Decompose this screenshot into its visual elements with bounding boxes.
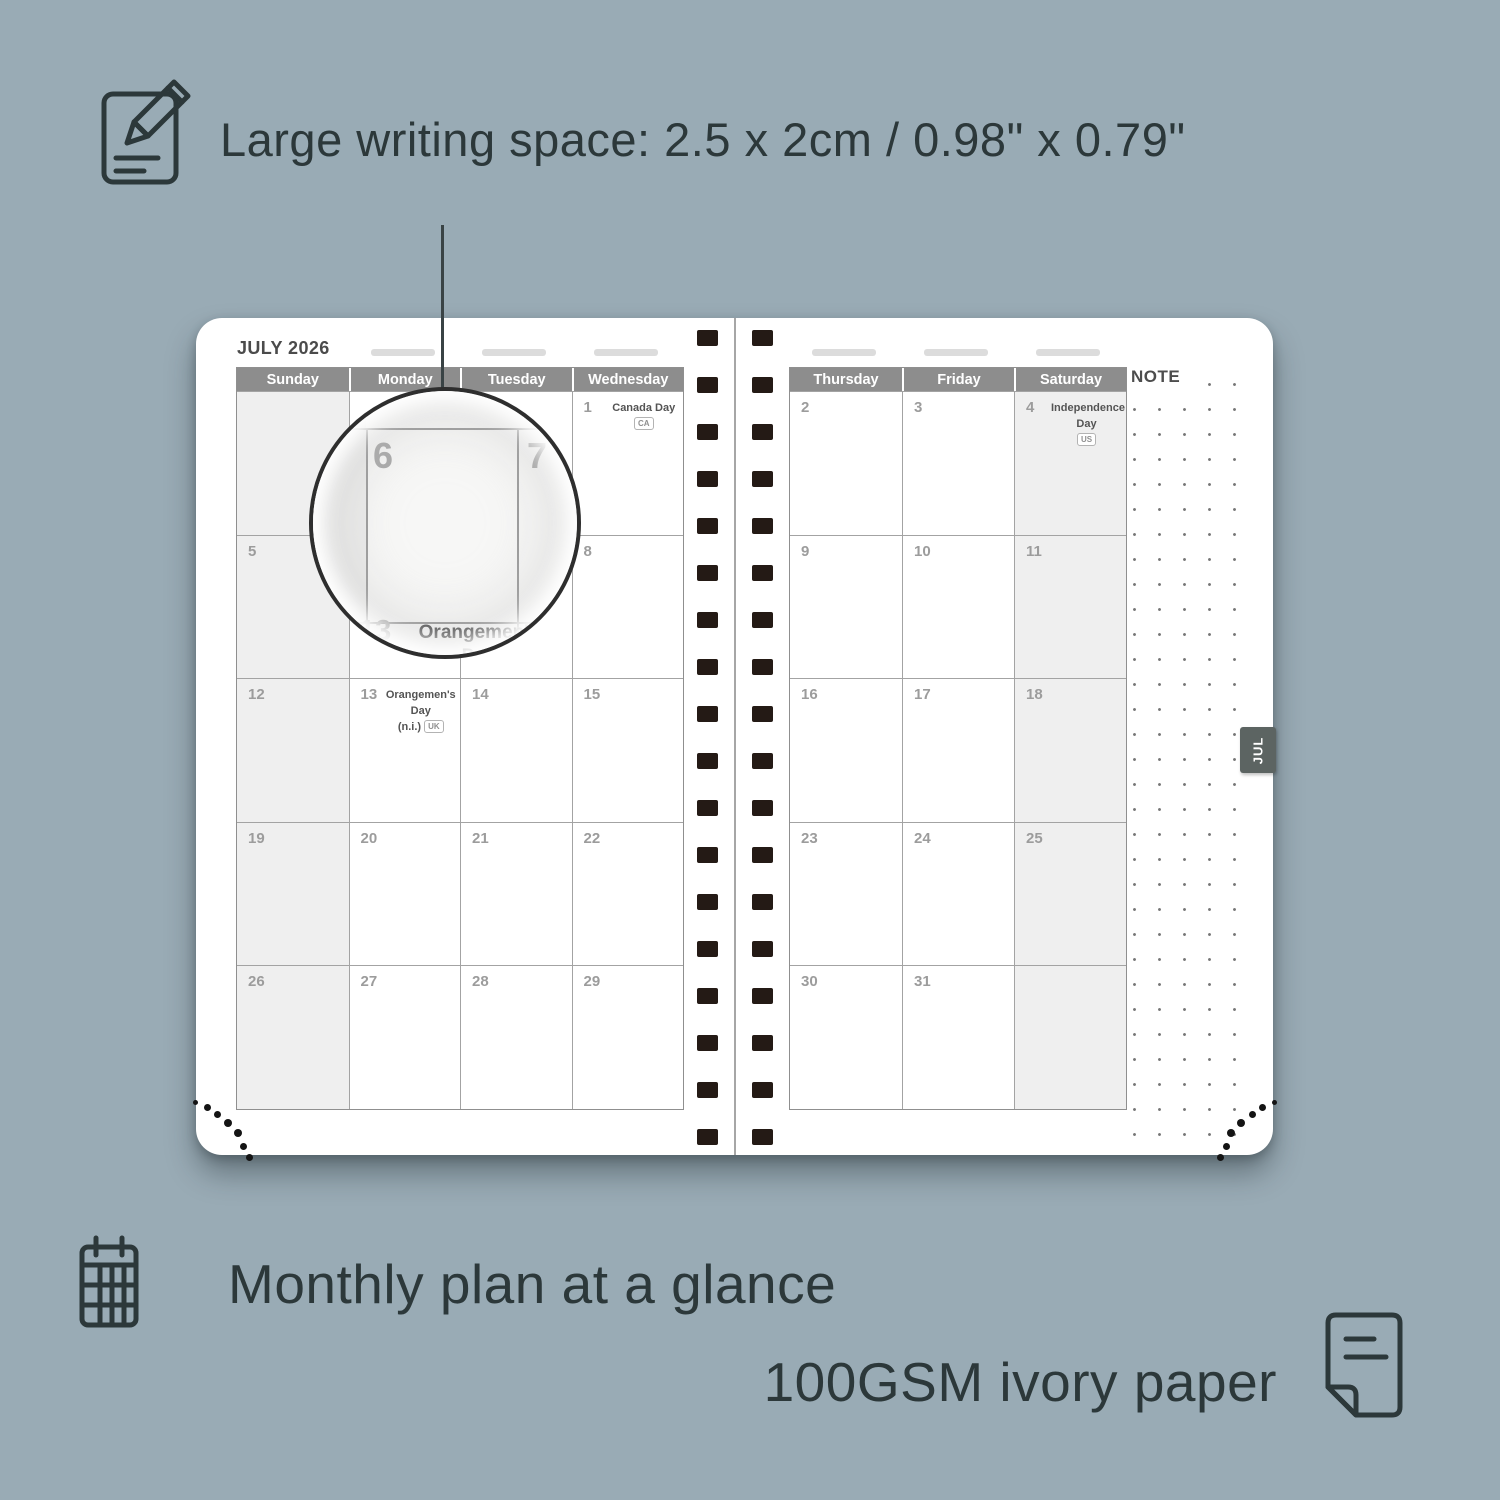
calendar-cell-11: 11: [1014, 535, 1126, 679]
binding-hole: [752, 706, 773, 722]
binding-hole: [752, 894, 773, 910]
calendar-cell-25: 25: [1014, 822, 1126, 966]
page-edge-mark: [924, 349, 988, 356]
paper-icon: [1322, 1311, 1406, 1425]
perforation-dot: [234, 1129, 242, 1137]
day-header-sunday: Sunday: [237, 368, 349, 391]
spiral-binding-left: [697, 330, 718, 1145]
date-number: 28: [472, 973, 489, 990]
page-edge-mark: [594, 349, 658, 356]
binding-hole: [697, 988, 718, 1004]
date-number: 16: [801, 686, 818, 703]
page-seam: [734, 318, 736, 1155]
perforation-dot: [1223, 1143, 1230, 1150]
perforation-dot: [240, 1143, 247, 1150]
perforation-dot: [224, 1119, 232, 1127]
perforation-dot: [1217, 1154, 1224, 1161]
binding-hole: [752, 1082, 773, 1098]
calendar-cell-9: 9: [790, 535, 902, 679]
date-number: 22: [584, 830, 601, 847]
date-number: 13: [361, 686, 378, 703]
date-number: 30: [801, 973, 818, 990]
calendar-cell-16: 16: [790, 678, 902, 822]
binding-hole: [752, 847, 773, 863]
perforation-dot: [193, 1100, 198, 1105]
calendar-cell-10: 10: [902, 535, 1014, 679]
magnifier-circle: 6 7 13 Orangemen's Day (n.i.) UK: [309, 387, 581, 659]
calendar-cell-14: 14: [460, 678, 572, 822]
date-number: 21: [472, 830, 489, 847]
feature-writing-space-label: Large writing space: 2.5 x 2cm / 0.98" x…: [220, 112, 1186, 167]
binding-hole: [752, 612, 773, 628]
binding-hole: [697, 894, 718, 910]
date-number: 24: [914, 830, 931, 847]
calendar-cell-18: 18: [1014, 678, 1126, 822]
day-header-thursday: Thursday: [790, 368, 902, 391]
month-tab-label: JUL: [1251, 736, 1266, 764]
perforation-dot: [1259, 1104, 1266, 1111]
perforation-dot: [1249, 1111, 1256, 1118]
binding-hole: [697, 659, 718, 675]
magnified-day-7: 7: [527, 435, 547, 477]
calendar-cell-1: 1Canada Day CA: [572, 391, 684, 535]
calendar-cell-26: 26: [237, 965, 349, 1109]
binding-hole: [752, 941, 773, 957]
calendar-cell-21: 21: [460, 822, 572, 966]
calendar-cell-29: 29: [572, 965, 684, 1109]
date-number: 18: [1026, 686, 1043, 703]
binding-hole: [752, 1129, 773, 1145]
binding-hole: [697, 1129, 718, 1145]
magnified-day-6: 6: [373, 435, 393, 477]
date-number: 10: [914, 543, 931, 560]
binding-hole: [752, 424, 773, 440]
calendar-cell-20: 20: [349, 822, 461, 966]
page-edge-mark: [371, 349, 435, 356]
date-number: 17: [914, 686, 931, 703]
note-pencil-icon: [96, 78, 192, 188]
holiday-label: Independence DayUS: [1051, 401, 1122, 449]
binding-hole: [697, 1035, 718, 1051]
binding-hole: [752, 471, 773, 487]
feature-paper-label: 100GSM ivory paper: [764, 1350, 1277, 1414]
binding-hole: [697, 800, 718, 816]
binding-hole: [697, 753, 718, 769]
calendar-cell-23: 23: [790, 822, 902, 966]
binding-hole: [752, 1035, 773, 1051]
month-tab-jul: JUL: [1240, 727, 1276, 773]
calendar-cell-31: 31: [902, 965, 1014, 1109]
date-number: 29: [584, 973, 601, 990]
calendar-cell-2: 2: [790, 391, 902, 535]
calendar-cell-empty: [1014, 965, 1126, 1109]
calendar-cell-17: 17: [902, 678, 1014, 822]
date-number: 20: [361, 830, 378, 847]
date-number: 2: [801, 399, 809, 416]
calendar-cell-8: 8: [572, 535, 684, 679]
binding-hole: [697, 847, 718, 863]
magnified-day-13: 13: [359, 615, 391, 648]
month-title: JULY 2026: [237, 338, 330, 359]
binding-hole: [697, 565, 718, 581]
perforation-dot: [1272, 1100, 1277, 1105]
calendar-cell-24: 24: [902, 822, 1014, 966]
perforation-dot: [1227, 1129, 1235, 1137]
binding-hole: [752, 518, 773, 534]
binding-hole: [697, 1082, 718, 1098]
date-number: 19: [248, 830, 265, 847]
day-header-wednesday: Wednesday: [572, 368, 684, 391]
binding-hole: [752, 565, 773, 581]
calendar-cell-3: 3: [902, 391, 1014, 535]
binding-hole: [697, 612, 718, 628]
product-image: Large writing space: 2.5 x 2cm / 0.98" x…: [0, 0, 1500, 1500]
calendar-cell-15: 15: [572, 678, 684, 822]
date-number: 11: [1026, 543, 1042, 560]
binding-hole: [697, 471, 718, 487]
page-edge-mark: [1036, 349, 1100, 356]
feature-monthly-plan-label: Monthly plan at a glance: [228, 1252, 836, 1316]
binding-hole: [752, 753, 773, 769]
binding-hole: [697, 518, 718, 534]
binding-hole: [752, 330, 773, 346]
binding-hole: [697, 424, 718, 440]
country-badge: UK: [424, 720, 444, 733]
page-edge-mark: [482, 349, 546, 356]
calendar-icon: [78, 1235, 140, 1329]
binding-hole: [752, 377, 773, 393]
calendar-grid-right: ThursdayFridaySaturday234Independence Da…: [789, 367, 1127, 1110]
binding-hole: [697, 941, 718, 957]
day-header-saturday: Saturday: [1014, 368, 1126, 391]
magnified-grid-line: [313, 428, 577, 430]
date-number: 9: [801, 543, 809, 560]
magnified-holiday: Orangemen's Day (n.i.) UK: [409, 621, 549, 659]
date-number: 5: [248, 543, 256, 560]
day-header-tuesday: Tuesday: [460, 368, 572, 391]
binding-hole: [752, 988, 773, 1004]
calendar-cell-22: 22: [572, 822, 684, 966]
calendar-cell-12: 12: [237, 678, 349, 822]
calendar-cell-13: 13Orangemen's Day(n.i.) UK: [349, 678, 461, 822]
country-badge: US: [1077, 433, 1096, 446]
binding-hole: [752, 659, 773, 675]
binding-hole: [697, 706, 718, 722]
note-dot-grid: [1122, 372, 1247, 1148]
date-number: 8: [584, 543, 592, 560]
binding-hole: [697, 377, 718, 393]
holiday-label: Canada Day CA: [609, 401, 680, 433]
holiday-label: Orangemen's Day(n.i.) UK: [386, 688, 457, 736]
perforation-dot: [1237, 1119, 1245, 1127]
day-header-friday: Friday: [902, 368, 1014, 391]
perforation-dot: [204, 1104, 211, 1111]
calendar-cell-28: 28: [460, 965, 572, 1109]
date-number: 23: [801, 830, 818, 847]
country-badge: CA: [634, 417, 654, 430]
spiral-binding-right: [752, 330, 773, 1145]
calendar-cell-30: 30: [790, 965, 902, 1109]
calendar-cell-19: 19: [237, 822, 349, 966]
date-number: 27: [361, 973, 378, 990]
calendar-cell-27: 27: [349, 965, 461, 1109]
binding-hole: [697, 330, 718, 346]
perforation-dot: [214, 1111, 221, 1118]
date-number: 14: [472, 686, 489, 703]
page-edge-mark: [812, 349, 876, 356]
date-number: 15: [584, 686, 601, 703]
date-number: 3: [914, 399, 922, 416]
binding-hole: [752, 800, 773, 816]
calendar-cell-4: 4Independence DayUS: [1014, 391, 1126, 535]
date-number: 25: [1026, 830, 1043, 847]
perforation-dot: [246, 1154, 253, 1161]
date-number: 26: [248, 973, 265, 990]
magnifier-pointer-line: [441, 225, 444, 393]
date-number: 31: [914, 973, 931, 990]
date-number: 1: [584, 399, 592, 416]
date-number: 12: [248, 686, 265, 703]
note-label: NOTE: [1129, 365, 1190, 390]
date-number: 4: [1026, 399, 1034, 416]
